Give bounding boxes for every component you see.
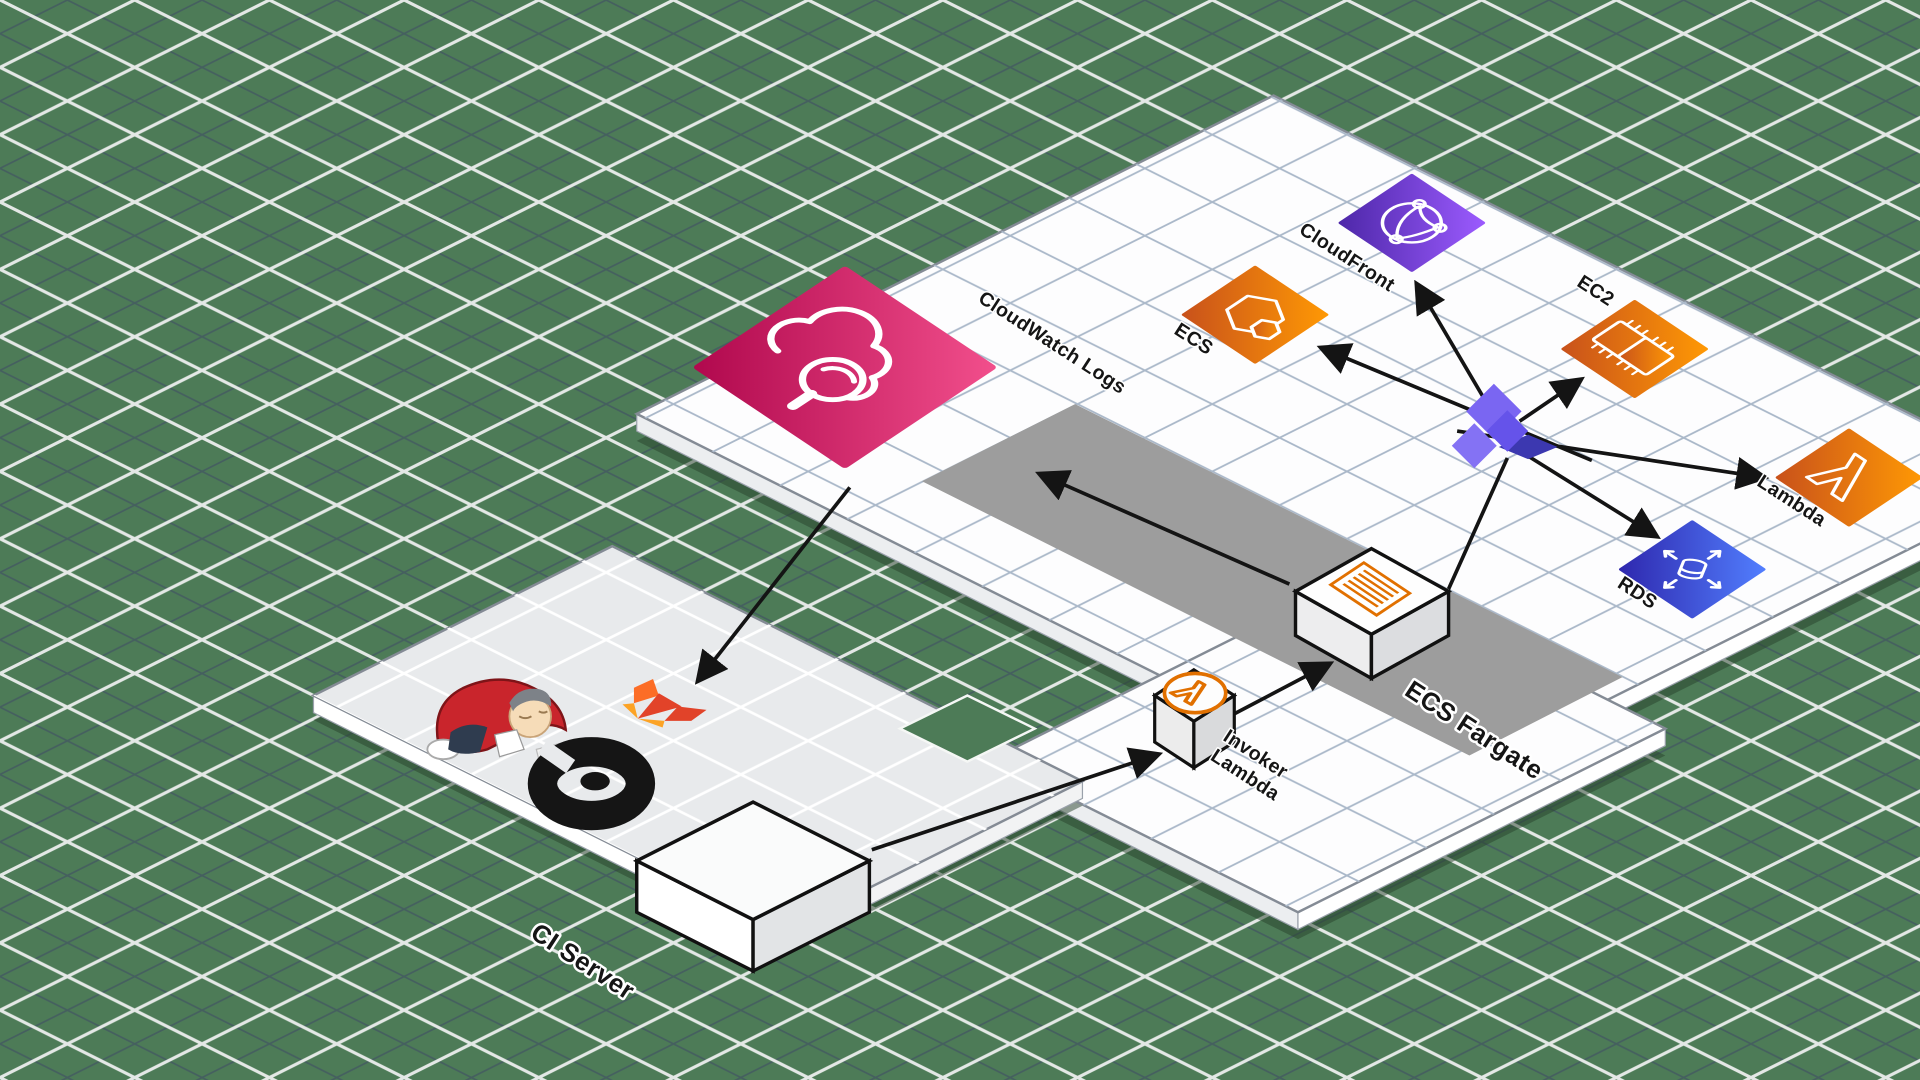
buddy-dot <box>580 772 609 790</box>
isometric-architecture-diagram: CloudWatch Logs CloudFront ECS EC2 Lambd… <box>0 0 1920 1080</box>
buddy-logo <box>542 747 640 816</box>
